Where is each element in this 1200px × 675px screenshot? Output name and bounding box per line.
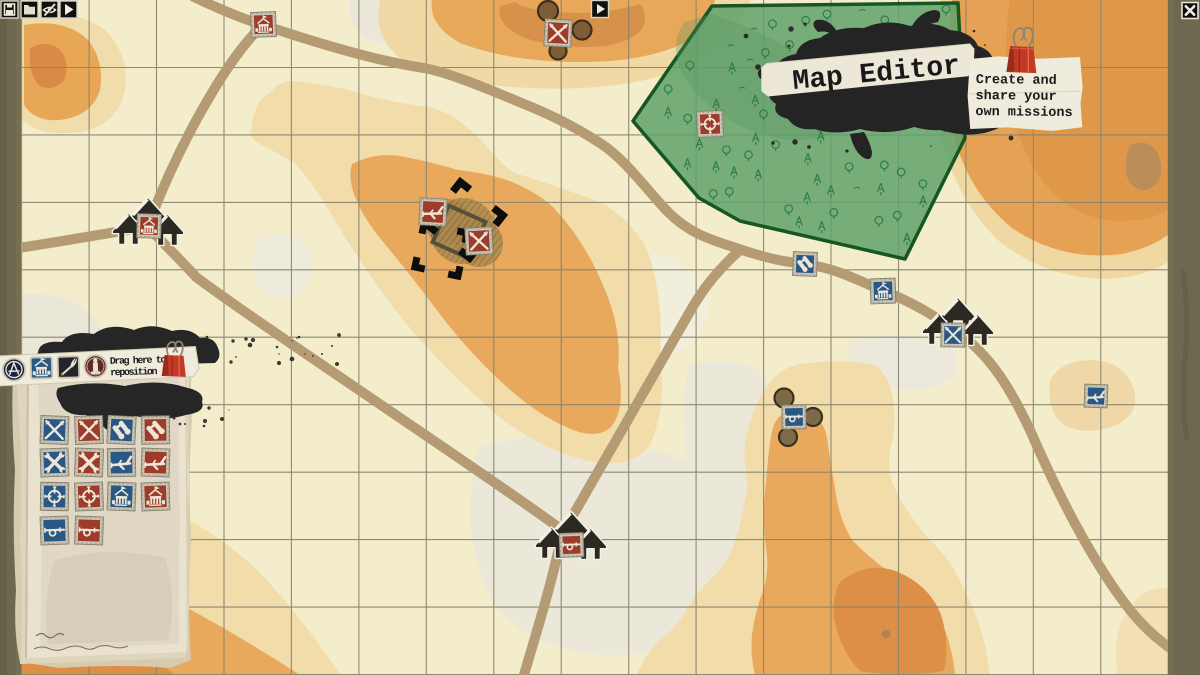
svg-text:Drag here to: Drag here to — [110, 354, 167, 368]
svg-text:share your: share your — [975, 89, 1056, 105]
svg-text:Create and: Create and — [976, 73, 1057, 89]
svg-text:own missions: own missions — [975, 105, 1072, 121]
svg-text:reposition: reposition — [110, 366, 158, 379]
